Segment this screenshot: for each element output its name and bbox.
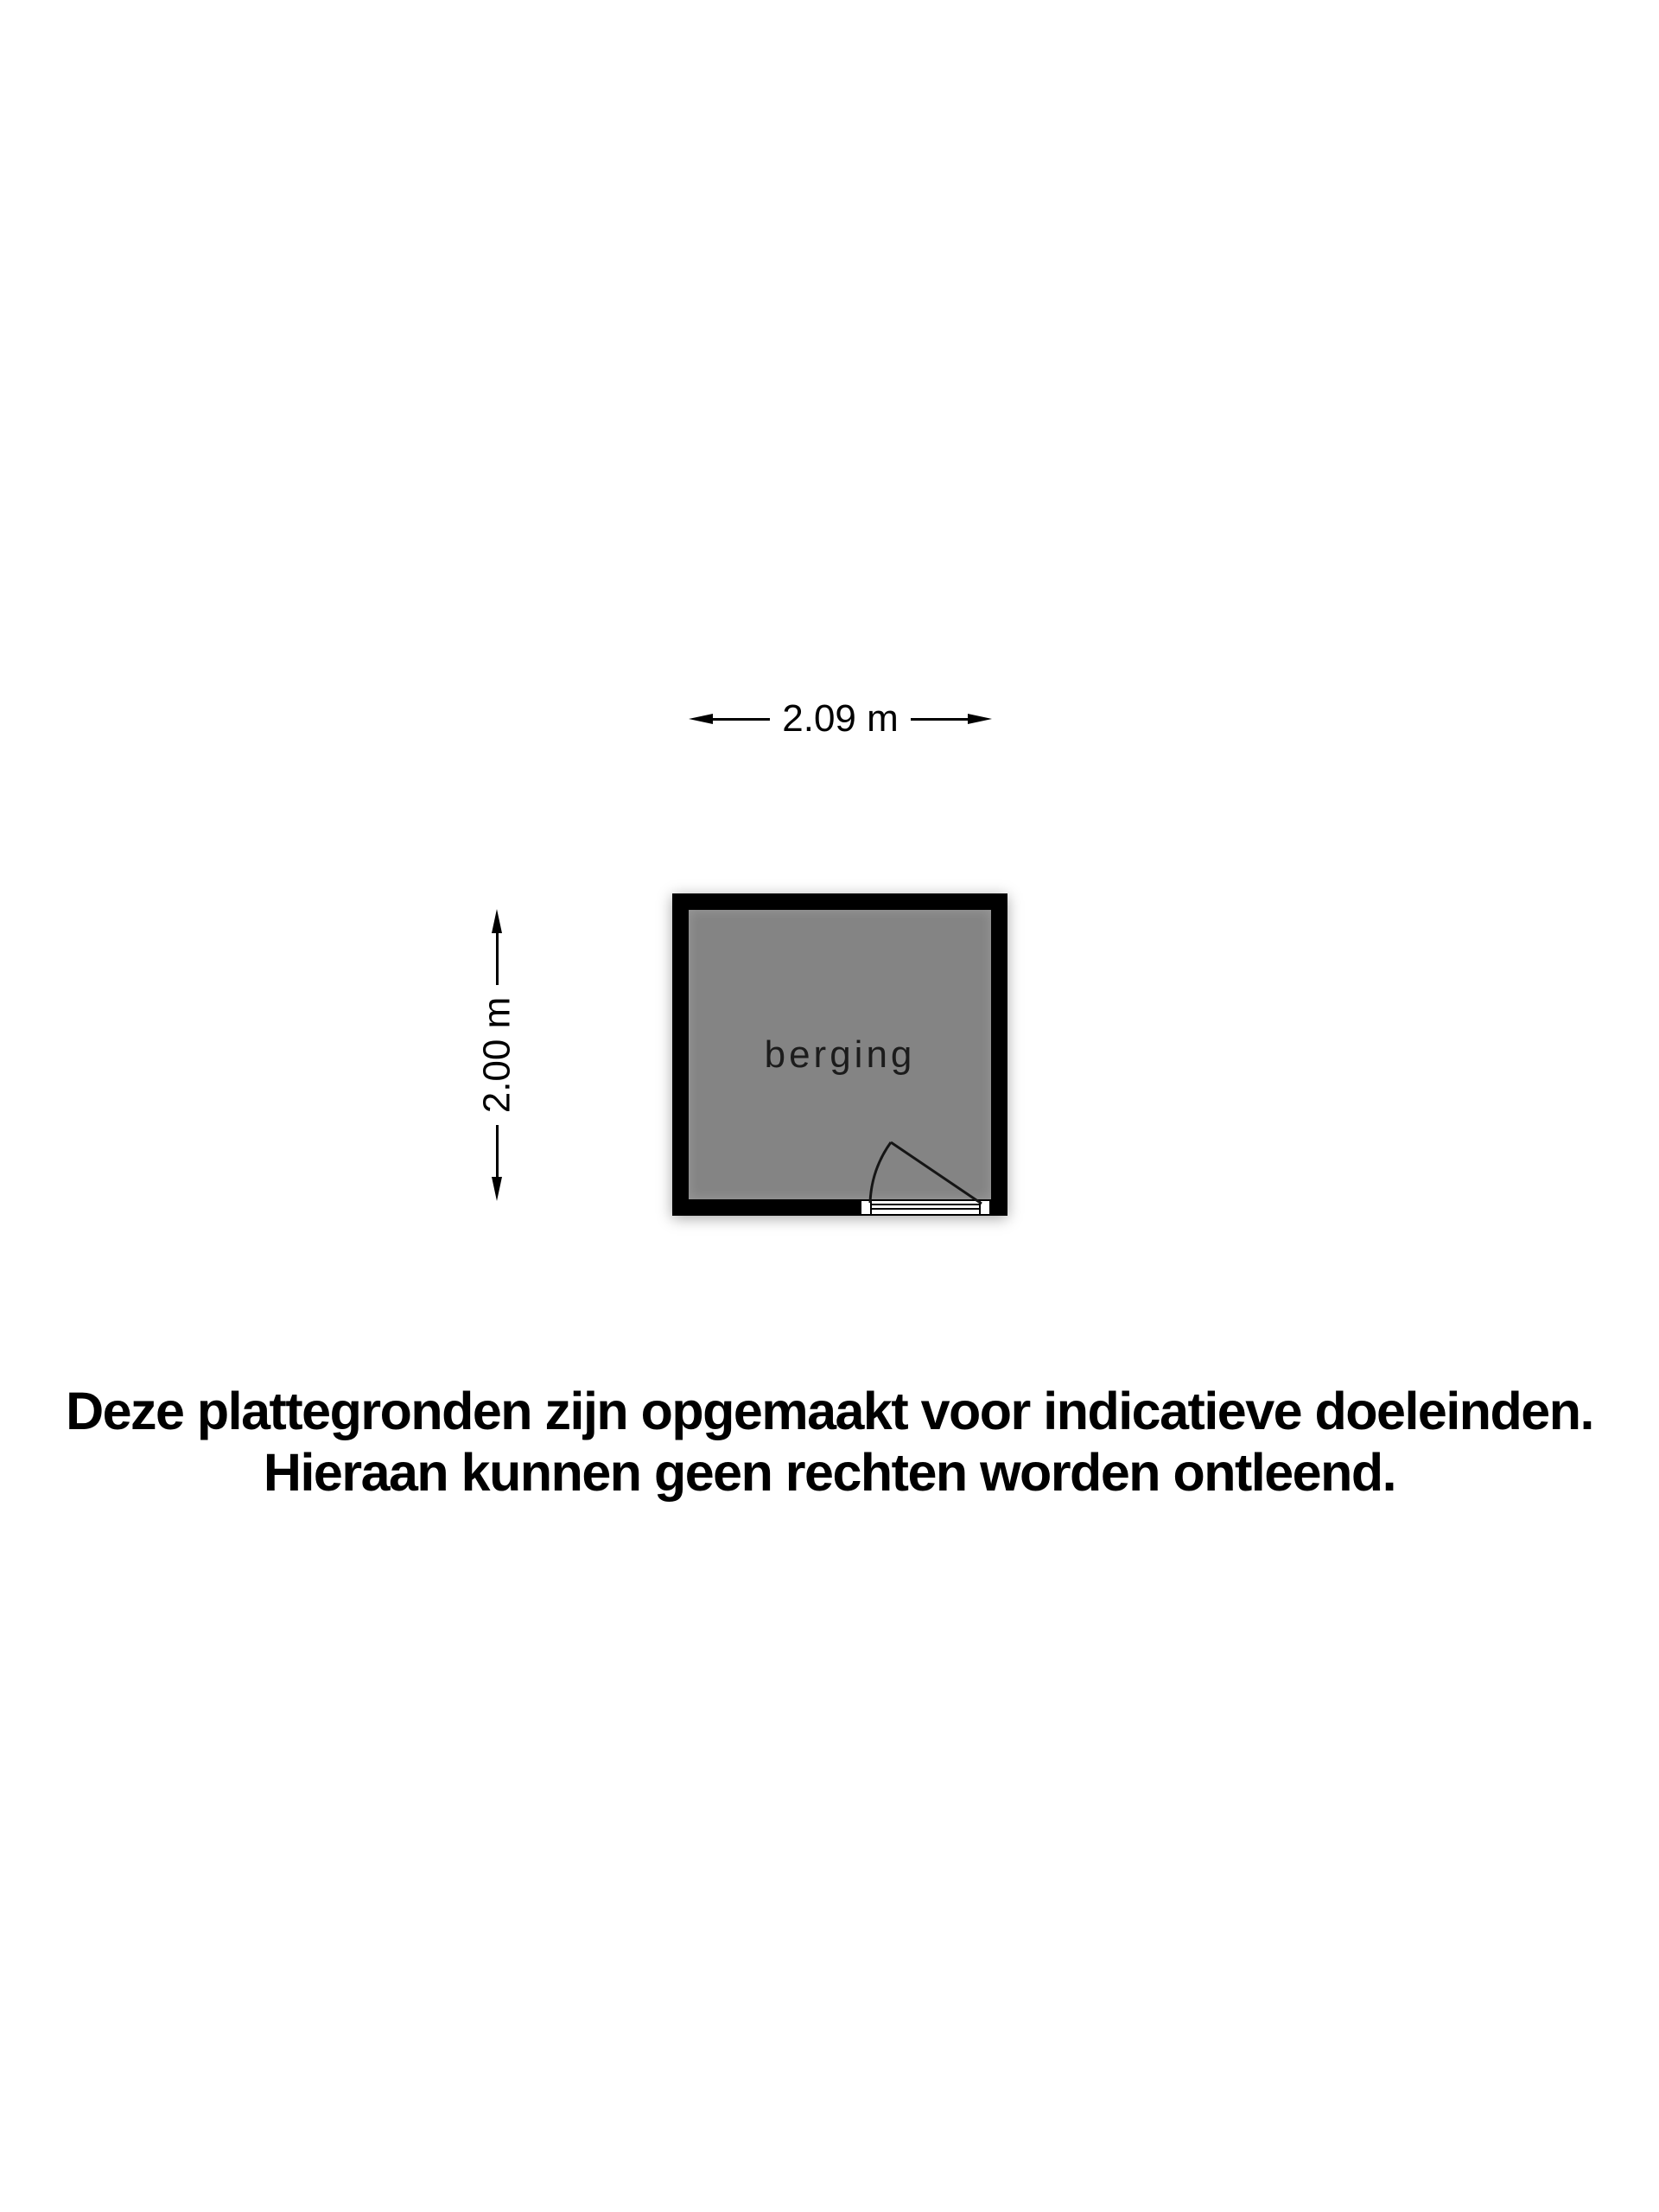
door-jamb-left <box>860 1199 872 1216</box>
door-sill-line <box>871 1208 980 1210</box>
door-jamb-right <box>979 1199 991 1216</box>
height-dimension: 2.00 m <box>477 909 517 1201</box>
dimension-line-right <box>911 718 968 721</box>
door-threshold <box>860 1199 991 1216</box>
dimension-line-top <box>496 933 499 985</box>
room-label: berging <box>765 1033 916 1077</box>
disclaimer-line-2: Hieraan kunnen geen rechten worden ontle… <box>0 1442 1659 1503</box>
arrow-right-icon <box>968 714 992 724</box>
dimension-line-left <box>713 718 770 721</box>
width-dimension: 2.09 m <box>689 696 992 741</box>
arrow-up-icon <box>492 909 502 933</box>
arrow-left-icon <box>689 714 713 724</box>
width-dimension-label: 2.09 m <box>782 697 899 741</box>
room-floor: berging <box>689 910 991 1199</box>
room-berging: berging <box>672 893 1007 1216</box>
height-dimension-label: 2.00 m <box>475 997 518 1114</box>
floor-plan-page: 2.09 m 2.00 m berging Deze plattegronden… <box>0 0 1659 2212</box>
arrow-down-icon <box>492 1177 502 1201</box>
door-sill-line <box>871 1204 980 1205</box>
disclaimer-line-1: Deze plattegronden zijn opgemaakt voor i… <box>0 1381 1659 1442</box>
dimension-line-bottom <box>496 1125 499 1177</box>
disclaimer: Deze plattegronden zijn opgemaakt voor i… <box>0 1381 1659 1503</box>
height-dimension-label-box: 2.00 m <box>439 990 556 1120</box>
